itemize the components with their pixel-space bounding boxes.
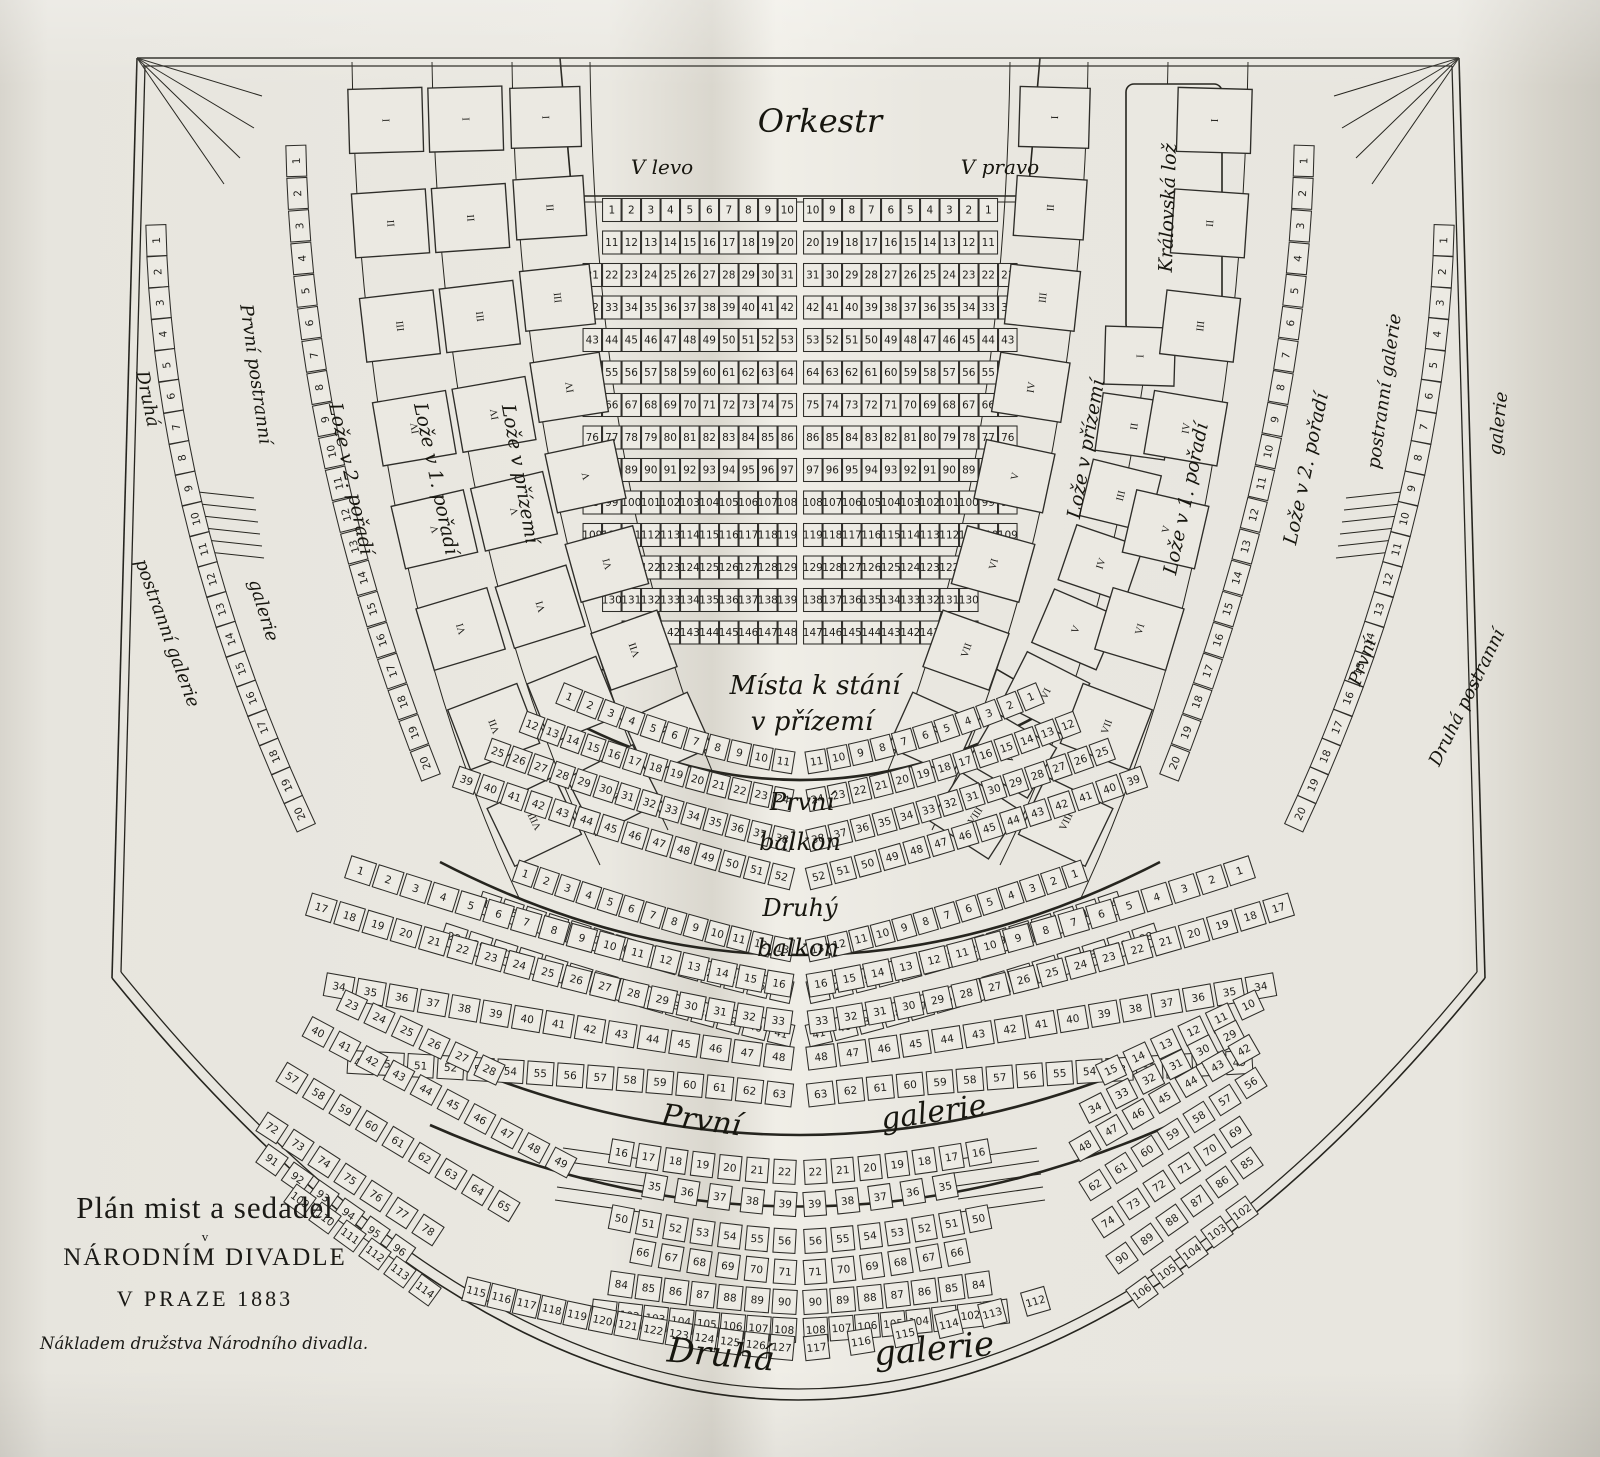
svg-text:48: 48 bbox=[771, 1051, 786, 1065]
galerie2-wing-l3-59: 59 bbox=[329, 1094, 361, 1125]
svg-text:123: 123 bbox=[660, 562, 680, 574]
svg-text:51: 51 bbox=[641, 1217, 656, 1231]
side-gal-1-left-5: 5 bbox=[294, 274, 317, 307]
svg-text:53: 53 bbox=[806, 335, 819, 347]
galerie2-r2-39: 39 bbox=[803, 1191, 827, 1217]
parterre-r8-right-80: 80 bbox=[921, 426, 940, 449]
svg-text:37: 37 bbox=[873, 1191, 888, 1205]
balkon2-l1-11: 11 bbox=[727, 926, 752, 952]
loze-2-right-III: III bbox=[1160, 290, 1241, 362]
svg-text:68: 68 bbox=[692, 1256, 707, 1270]
svg-text:29: 29 bbox=[845, 270, 858, 282]
svg-text:57: 57 bbox=[593, 1072, 607, 1085]
parterre-r14-left-147: 147 bbox=[758, 621, 778, 644]
parterre-r5-right-52: 52 bbox=[823, 329, 842, 352]
svg-text:95: 95 bbox=[742, 465, 755, 477]
balkon2-l1-9: 9 bbox=[683, 914, 708, 941]
parterre-r11-left-115: 115 bbox=[699, 524, 719, 547]
svg-text:143: 143 bbox=[680, 627, 700, 639]
galerie2-l1-17: 17 bbox=[636, 1143, 661, 1170]
parterre-r4-left-35: 35 bbox=[642, 296, 661, 319]
svg-text:142: 142 bbox=[900, 627, 920, 639]
svg-text:54: 54 bbox=[1083, 1065, 1097, 1078]
svg-text:56: 56 bbox=[1023, 1069, 1038, 1082]
svg-text:1: 1 bbox=[151, 237, 163, 244]
svg-text:17: 17 bbox=[641, 1151, 656, 1165]
galerie2-r3-50: 50 bbox=[966, 1205, 992, 1233]
parterre-r9-left-90: 90 bbox=[642, 459, 661, 482]
svg-text:20: 20 bbox=[781, 237, 794, 249]
parterre-r5-right-48: 48 bbox=[901, 329, 920, 352]
galerie2-wing-l2-45: 45 bbox=[437, 1089, 469, 1120]
svg-text:59: 59 bbox=[653, 1076, 667, 1089]
parterre-r6-left-62: 62 bbox=[739, 361, 758, 384]
parterre-r4-left-42: 42 bbox=[778, 296, 797, 319]
parterre-r12-left-128: 128 bbox=[758, 556, 778, 579]
side-gal-1-right-8: 8 bbox=[1268, 371, 1293, 405]
svg-text:103: 103 bbox=[680, 497, 700, 509]
parterre-r10-left-106: 106 bbox=[738, 491, 758, 514]
parterre-r8-right-79: 79 bbox=[940, 426, 959, 449]
svg-text:41: 41 bbox=[1034, 1018, 1049, 1032]
galerie2-r3-54: 54 bbox=[858, 1223, 883, 1249]
side-gal-2-right-7: 7 bbox=[1411, 410, 1436, 444]
svg-text:70: 70 bbox=[904, 400, 917, 412]
side-gal-2-left-1: 1 bbox=[146, 225, 167, 257]
parterre-r4-right-39: 39 bbox=[862, 296, 881, 319]
galerie1-r2-28: 28 bbox=[951, 979, 981, 1007]
galerie2-l3-52: 52 bbox=[663, 1215, 689, 1242]
parterre-r2-left-15: 15 bbox=[681, 231, 700, 254]
svg-text:5: 5 bbox=[907, 205, 914, 217]
parterre-r2-right-12: 12 bbox=[960, 231, 979, 254]
balkon1-r3-36: 36 bbox=[850, 815, 875, 841]
galerie2-r3-53: 53 bbox=[885, 1219, 910, 1246]
galerie1-l3-43: 43 bbox=[606, 1021, 637, 1048]
svg-text:12: 12 bbox=[962, 237, 975, 249]
parterre-r8-left-78: 78 bbox=[622, 426, 641, 449]
galerie2-wing-r3-48: 48 bbox=[1069, 1130, 1101, 1161]
side-gal-1-left-15: 15 bbox=[358, 591, 386, 626]
parterre-r10-right-106: 106 bbox=[842, 491, 862, 514]
balkon1-r3-35: 35 bbox=[872, 809, 897, 835]
svg-text:64: 64 bbox=[781, 367, 795, 379]
side-gal-1-right-17: 17 bbox=[1194, 653, 1223, 689]
galerie1-r4-55: 55 bbox=[1046, 1061, 1074, 1086]
svg-text:58: 58 bbox=[664, 367, 677, 379]
parterre-r11-right-119: 119 bbox=[803, 524, 823, 547]
galerie2-l7-121: 121 bbox=[614, 1311, 642, 1339]
balkon1-l4-52: 52 bbox=[768, 863, 795, 890]
svg-text:15: 15 bbox=[842, 972, 857, 986]
parterre-r11-left-118: 118 bbox=[758, 524, 778, 547]
side-gal-1-right-5: 5 bbox=[1283, 274, 1306, 307]
svg-text:18: 18 bbox=[917, 1155, 932, 1169]
svg-text:96: 96 bbox=[826, 465, 840, 477]
svg-text:144: 144 bbox=[699, 627, 719, 639]
galerie1-l2-19: 19 bbox=[362, 910, 393, 939]
galerie2-r5-88: 88 bbox=[857, 1284, 883, 1310]
svg-text:46: 46 bbox=[644, 335, 658, 347]
side-gal-2-left-7: 7 bbox=[164, 410, 189, 444]
svg-text:68: 68 bbox=[644, 400, 657, 412]
galerie2-l4-71: 71 bbox=[773, 1259, 797, 1284]
svg-text:43: 43 bbox=[586, 335, 599, 347]
galerie2-l3-50: 50 bbox=[608, 1205, 634, 1233]
right-boxes-2nd-tier-label: Lože v 2. pořadí bbox=[1279, 388, 1333, 548]
svg-text:63: 63 bbox=[761, 367, 774, 379]
svg-text:90: 90 bbox=[644, 465, 657, 477]
parterre-r2-right-15: 15 bbox=[901, 231, 920, 254]
svg-text:89: 89 bbox=[962, 465, 975, 477]
svg-text:129: 129 bbox=[803, 562, 823, 574]
parterre-r13-left-133: 133 bbox=[660, 589, 680, 612]
parterre-r2-left-16: 16 bbox=[700, 231, 719, 254]
side-gal-1-right-2: 2 bbox=[1292, 177, 1313, 209]
galerie1-l1-11: 11 bbox=[622, 939, 653, 968]
svg-text:87: 87 bbox=[695, 1289, 710, 1302]
side-gal-1-right-14: 14 bbox=[1223, 560, 1251, 595]
svg-text:15: 15 bbox=[743, 972, 758, 986]
svg-text:17: 17 bbox=[865, 237, 878, 249]
parterre-r7-left-75: 75 bbox=[778, 394, 797, 417]
parterre-r8-right-84: 84 bbox=[843, 426, 862, 449]
svg-text:39: 39 bbox=[865, 302, 878, 314]
galerie1-r1-4: 4 bbox=[1141, 882, 1173, 912]
svg-text:35: 35 bbox=[644, 302, 657, 314]
parterre-r6-left-60: 60 bbox=[700, 361, 719, 384]
galerie1-l2-32: 32 bbox=[735, 1003, 764, 1030]
svg-text:117: 117 bbox=[738, 530, 758, 542]
parterre-r3-right-26: 26 bbox=[901, 264, 920, 287]
svg-text:7: 7 bbox=[868, 205, 875, 217]
svg-text:105: 105 bbox=[861, 497, 881, 509]
galerie2-wing-l3-60: 60 bbox=[356, 1110, 388, 1141]
svg-text:146: 146 bbox=[738, 627, 758, 639]
svg-text:61: 61 bbox=[712, 1082, 726, 1095]
parterre-r3-right-31: 31 bbox=[804, 264, 823, 287]
svg-text:51: 51 bbox=[414, 1060, 428, 1073]
parterre-r2-right-19: 19 bbox=[823, 231, 842, 254]
parterre-r12-right-126: 126 bbox=[861, 556, 881, 579]
parterre-r12-right-127: 127 bbox=[842, 556, 862, 579]
balkon2-l1-2: 2 bbox=[533, 867, 559, 894]
svg-text:80: 80 bbox=[664, 432, 677, 444]
svg-text:51: 51 bbox=[944, 1217, 959, 1231]
parterre-r5-left-44: 44 bbox=[603, 329, 622, 352]
plan-title-line3: V PRAZE 1883 bbox=[40, 1286, 370, 1312]
svg-text:88: 88 bbox=[723, 1291, 737, 1304]
galerie2-wing-r6-89: 89 bbox=[1131, 1223, 1163, 1255]
parterre-r4-right-37: 37 bbox=[901, 296, 920, 319]
svg-text:54: 54 bbox=[863, 1230, 878, 1244]
parterre-r9-right-90: 90 bbox=[940, 459, 959, 482]
svg-text:89: 89 bbox=[625, 465, 638, 477]
side-gal-2-right-13: 13 bbox=[1365, 592, 1393, 628]
svg-text:78: 78 bbox=[962, 432, 975, 444]
svg-text:69: 69 bbox=[720, 1260, 735, 1274]
svg-text:116: 116 bbox=[719, 530, 739, 542]
svg-text:24: 24 bbox=[943, 270, 957, 282]
svg-text:73: 73 bbox=[845, 400, 858, 412]
balkon1-r1-10: 10 bbox=[827, 745, 851, 770]
svg-text:147: 147 bbox=[758, 627, 778, 639]
svg-text:92: 92 bbox=[683, 465, 696, 477]
svg-text:133: 133 bbox=[900, 595, 920, 607]
svg-text:133: 133 bbox=[660, 595, 680, 607]
side-gal-2-right-5: 5 bbox=[1421, 349, 1445, 382]
svg-text:37: 37 bbox=[683, 302, 696, 314]
svg-text:8: 8 bbox=[848, 205, 855, 217]
parterre-r2-right-17: 17 bbox=[862, 231, 881, 254]
svg-text:54: 54 bbox=[722, 1230, 737, 1243]
right-side-label: V pravo bbox=[961, 155, 1039, 179]
svg-text:118: 118 bbox=[822, 530, 842, 542]
loze-prizemi-right-I: I bbox=[1019, 86, 1091, 148]
balkon1-r2-20: 20 bbox=[890, 767, 914, 793]
parterre-r3-left-26: 26 bbox=[681, 264, 700, 287]
standing-area-label-line1: Místa k stání bbox=[729, 671, 905, 701]
svg-text:55: 55 bbox=[1053, 1067, 1067, 1080]
svg-text:38: 38 bbox=[457, 1002, 472, 1016]
parterre-r1-right-6: 6 bbox=[882, 199, 901, 222]
galerie2-l4-69: 69 bbox=[715, 1253, 740, 1280]
svg-text:127: 127 bbox=[842, 562, 862, 574]
galerie1-l4-62: 62 bbox=[735, 1078, 763, 1104]
parterre-r6-left-63: 63 bbox=[759, 361, 778, 384]
parterre-r7-left-70: 70 bbox=[681, 394, 700, 417]
parterre-r14-right-147: 147 bbox=[803, 621, 823, 644]
svg-text:48: 48 bbox=[904, 335, 917, 347]
svg-text:7: 7 bbox=[725, 205, 732, 217]
galerie2-wing-r4-57: 57 bbox=[1209, 1084, 1241, 1115]
parterre-r5-left-48: 48 bbox=[681, 329, 700, 352]
parterre-r8-left-86: 86 bbox=[778, 426, 797, 449]
svg-text:3: 3 bbox=[154, 299, 167, 307]
svg-text:124: 124 bbox=[680, 562, 700, 574]
svg-text:138: 138 bbox=[803, 595, 823, 607]
svg-text:94: 94 bbox=[722, 465, 736, 477]
galerie2-wing-l3-64: 64 bbox=[462, 1174, 494, 1205]
svg-text:1: 1 bbox=[608, 205, 615, 217]
parterre-r6-left-57: 57 bbox=[642, 361, 661, 384]
galerie1-l3-48: 48 bbox=[763, 1044, 794, 1070]
svg-text:95: 95 bbox=[845, 465, 858, 477]
svg-text:4: 4 bbox=[926, 205, 933, 217]
svg-text:86: 86 bbox=[806, 432, 820, 444]
svg-text:131: 131 bbox=[939, 595, 959, 607]
galerie2-r3-55: 55 bbox=[831, 1226, 855, 1252]
galerie2-r4-68: 68 bbox=[888, 1249, 913, 1276]
balkon2-l1-6: 6 bbox=[619, 895, 645, 922]
side-gal-1-right-10: 10 bbox=[1255, 434, 1281, 468]
galerie2-r4-70: 70 bbox=[831, 1256, 855, 1282]
second-balcony-label-line1: Druhý bbox=[761, 894, 838, 922]
svg-text:76: 76 bbox=[586, 432, 600, 444]
parterre-r13-right-130: 130 bbox=[959, 589, 979, 612]
svg-text:43: 43 bbox=[971, 1028, 986, 1042]
parterre-r14-right-145: 145 bbox=[842, 621, 862, 644]
galerie2-wing-l4-77: 77 bbox=[386, 1197, 418, 1229]
svg-text:28: 28 bbox=[722, 270, 735, 282]
svg-text:41: 41 bbox=[761, 302, 774, 314]
parterre-r6-right-55: 55 bbox=[979, 361, 998, 384]
parterre-r6-right-61: 61 bbox=[862, 361, 881, 384]
galerie1-l2-29: 29 bbox=[647, 986, 677, 1014]
galerie2-l2-37: 37 bbox=[707, 1184, 732, 1211]
parterre-r14-left-146: 146 bbox=[738, 621, 758, 644]
balkon1-r4-39: 39 bbox=[1119, 766, 1147, 794]
svg-text:53: 53 bbox=[695, 1226, 710, 1240]
standing-area-label-line2: v přízemí bbox=[751, 707, 877, 737]
galerie2-wing-r3-47: 47 bbox=[1096, 1114, 1128, 1145]
svg-text:91: 91 bbox=[923, 465, 936, 477]
svg-text:16: 16 bbox=[813, 977, 828, 991]
svg-text:143: 143 bbox=[881, 627, 901, 639]
galerie2-r5-86: 86 bbox=[911, 1278, 938, 1305]
side-gal-2-right-1: 1 bbox=[1433, 225, 1454, 257]
galerie2-r3-51: 51 bbox=[939, 1210, 965, 1238]
svg-text:83: 83 bbox=[865, 432, 878, 444]
parterre-r12-left-127: 127 bbox=[738, 556, 758, 579]
svg-text:11: 11 bbox=[809, 755, 824, 769]
second-gallery-label-line1: Druhá bbox=[665, 1330, 777, 1379]
svg-text:5: 5 bbox=[686, 205, 693, 217]
svg-text:134: 134 bbox=[881, 595, 901, 607]
galerie2-wing-r4-59: 59 bbox=[1157, 1118, 1189, 1149]
balkon1-l4-39: 39 bbox=[453, 766, 481, 794]
parterre-r3-right-27: 27 bbox=[882, 264, 901, 287]
right-second-side-gallery-label-2: galerie bbox=[1485, 391, 1513, 457]
svg-text:34: 34 bbox=[625, 302, 639, 314]
balkon2-r1-6: 6 bbox=[956, 895, 982, 922]
balkon1-l4-50: 50 bbox=[719, 850, 746, 877]
svg-text:50: 50 bbox=[865, 335, 878, 347]
parterre-r2-left-18: 18 bbox=[739, 231, 758, 254]
svg-text:31: 31 bbox=[712, 1005, 727, 1019]
svg-text:58: 58 bbox=[623, 1074, 637, 1087]
loze-1-left-II: II bbox=[431, 183, 509, 252]
svg-text:18: 18 bbox=[668, 1155, 683, 1169]
galerie1-r1-1: 1 bbox=[1223, 856, 1255, 886]
svg-text:30: 30 bbox=[683, 999, 698, 1013]
loze-prizemi-left-IV: IV bbox=[530, 352, 608, 422]
parterre-r3-left-23: 23 bbox=[622, 264, 641, 287]
svg-text:10: 10 bbox=[781, 205, 794, 217]
galerie2-wing-l2-40: 40 bbox=[302, 1017, 334, 1048]
svg-text:113: 113 bbox=[660, 530, 680, 542]
svg-text:15: 15 bbox=[904, 237, 917, 249]
svg-text:16: 16 bbox=[771, 977, 786, 991]
galerie2-wing-r5-69: 69 bbox=[1219, 1116, 1251, 1148]
balkon1-l2-22: 22 bbox=[728, 777, 751, 803]
galerie2-l7-120: 120 bbox=[588, 1306, 616, 1334]
balkon2-r1-10: 10 bbox=[870, 920, 895, 946]
svg-text:85: 85 bbox=[761, 432, 774, 444]
svg-text:39: 39 bbox=[808, 1198, 822, 1211]
svg-text:31: 31 bbox=[781, 270, 794, 282]
galerie1-l1-16: 16 bbox=[764, 970, 793, 997]
svg-text:36: 36 bbox=[680, 1186, 695, 1200]
svg-text:61: 61 bbox=[873, 1082, 887, 1095]
svg-text:18: 18 bbox=[742, 237, 755, 249]
galerie2-wing-l3-57: 57 bbox=[276, 1062, 308, 1093]
galerie2-r7-112: 112 bbox=[1021, 1286, 1051, 1316]
parterre-r1-left-5: 5 bbox=[681, 199, 700, 222]
galerie1-l4-61: 61 bbox=[706, 1075, 734, 1100]
balkon1-l3-33: 33 bbox=[659, 796, 684, 823]
balkon1-l1-11: 11 bbox=[772, 749, 795, 774]
parterre-r1-left-4: 4 bbox=[661, 199, 680, 222]
svg-text:62: 62 bbox=[742, 367, 755, 379]
galerie2-wing-r5-74: 74 bbox=[1092, 1206, 1124, 1238]
parterre-r1-left-1: 1 bbox=[603, 199, 622, 222]
galerie2-r7-117: 117 bbox=[803, 1334, 829, 1360]
galerie2-l7-117: 117 bbox=[512, 1289, 541, 1318]
parterre-r3-left-25: 25 bbox=[661, 264, 680, 287]
galerie2-r1-22: 22 bbox=[804, 1159, 827, 1184]
svg-text:74: 74 bbox=[826, 400, 840, 412]
balkon1-l4-48: 48 bbox=[670, 836, 697, 863]
parterre-r8-right-86: 86 bbox=[804, 426, 823, 449]
svg-text:33: 33 bbox=[605, 302, 618, 314]
parterre-r3-right-30: 30 bbox=[823, 264, 842, 287]
svg-text:59: 59 bbox=[904, 367, 917, 379]
balkon1-r4-51: 51 bbox=[830, 857, 857, 884]
svg-text:70: 70 bbox=[836, 1263, 851, 1276]
svg-text:53: 53 bbox=[890, 1226, 905, 1240]
balkon2-l1-4: 4 bbox=[576, 882, 602, 909]
svg-text:104: 104 bbox=[699, 497, 719, 509]
galerie1-l2-31: 31 bbox=[705, 998, 735, 1025]
galerie1-l1-4: 4 bbox=[427, 882, 459, 912]
side-gal-1-right-15: 15 bbox=[1214, 591, 1242, 626]
galerie2-l3-53: 53 bbox=[690, 1219, 715, 1246]
svg-text:137: 137 bbox=[822, 595, 842, 607]
galerie1-r3-47: 47 bbox=[837, 1040, 868, 1067]
svg-text:31: 31 bbox=[806, 270, 819, 282]
parterre-r1-right-8: 8 bbox=[843, 199, 862, 222]
parterre-r4-right-38: 38 bbox=[882, 296, 901, 319]
balkon2-r1-8: 8 bbox=[913, 908, 938, 935]
galerie1-l3-36: 36 bbox=[386, 984, 418, 1011]
svg-text:52: 52 bbox=[761, 335, 774, 347]
parterre-r3-left-24: 24 bbox=[642, 264, 661, 287]
loze-2-left-I: I bbox=[348, 87, 424, 153]
svg-text:III: III bbox=[1038, 292, 1050, 304]
balkon1-r1-11: 11 bbox=[805, 749, 828, 774]
svg-text:146: 146 bbox=[822, 627, 842, 639]
balkon1-r4-49: 49 bbox=[879, 843, 906, 870]
svg-text:23: 23 bbox=[625, 270, 638, 282]
svg-text:138: 138 bbox=[758, 595, 778, 607]
galerie1-r3-38: 38 bbox=[1120, 995, 1151, 1022]
side-gal-1-left-19: 19 bbox=[399, 714, 429, 750]
plan-imprint: Nákladem družstva Národního divadla. bbox=[40, 1334, 370, 1353]
parterre-r12-left-126: 126 bbox=[719, 556, 739, 579]
svg-text:26: 26 bbox=[683, 270, 697, 282]
svg-text:67: 67 bbox=[664, 1251, 679, 1265]
svg-text:116: 116 bbox=[861, 530, 881, 542]
svg-text:32: 32 bbox=[742, 1010, 757, 1024]
parterre-r1-left-8: 8 bbox=[739, 199, 758, 222]
parterre-r6-left-64: 64 bbox=[778, 361, 797, 384]
svg-text:130: 130 bbox=[959, 595, 979, 607]
svg-text:36: 36 bbox=[1191, 991, 1207, 1005]
svg-text:126: 126 bbox=[861, 562, 881, 574]
svg-text:2: 2 bbox=[292, 190, 304, 197]
parterre-r11-left-116: 116 bbox=[719, 524, 739, 547]
